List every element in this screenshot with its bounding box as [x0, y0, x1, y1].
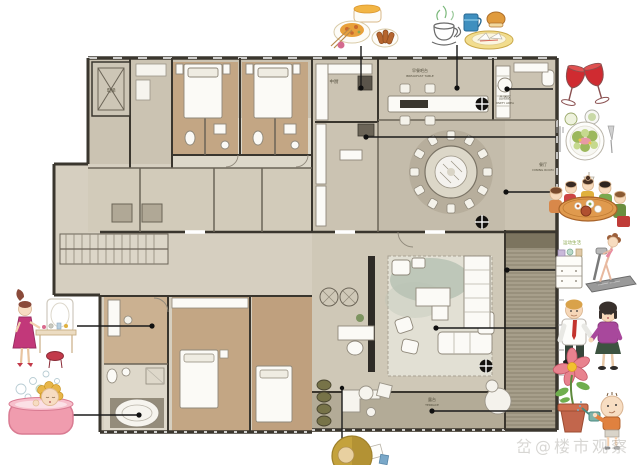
label-breakfast-zh: 早餐吧台	[412, 67, 428, 73]
label-bar-zh: 品酒区	[499, 94, 511, 100]
label-bar-en: PARTY AREA	[496, 101, 515, 105]
watermark-text: 岔@楼市观察	[516, 437, 630, 456]
label-terrace-zh: 露台	[428, 396, 436, 402]
label-terrace-en: TERRACE	[424, 403, 439, 407]
coffee-illustration	[432, 6, 461, 45]
floor-plan: 电梯 中厨 早餐吧台 BREAKFAST TABLE 品酒区 PARTY ARE…	[54, 58, 564, 432]
salad-plate-illustration	[557, 110, 614, 160]
label-elevator: 电梯	[107, 87, 116, 94]
staircase	[60, 234, 168, 264]
chinese-food-illustration	[331, 5, 398, 49]
label-dining-zh: 餐厅	[539, 161, 547, 167]
girl-bathtub-illustration	[9, 371, 73, 434]
label-kitchen: 中厨	[330, 78, 339, 85]
floor-plan-image: 电梯 中厨 早餐吧台 BREAKFAST TABLE 品酒区 PARTY ARE…	[0, 0, 640, 465]
gym-caption: 运动生活	[563, 239, 581, 246]
bottom-figure-illustration	[332, 436, 389, 465]
lady-vanity-illustration	[13, 289, 76, 368]
label-dining-en: DINING ROOM	[532, 168, 554, 172]
label-breakfast-en: BREAKFAST TABLE	[406, 74, 434, 78]
wine-glasses-illustration	[559, 62, 612, 107]
home-gym-illustration: 运动生活	[556, 233, 636, 292]
family-dinner-illustration	[549, 172, 630, 227]
round-dining-table	[409, 130, 493, 214]
page: 电梯 中厨 早餐吧台 BREAKFAST TABLE 品酒区 PARTY ARE…	[0, 0, 640, 465]
mug-sandwich-illustration	[464, 12, 513, 49]
watermark: 岔@楼市观察 岔@楼市观察	[516, 436, 631, 456]
